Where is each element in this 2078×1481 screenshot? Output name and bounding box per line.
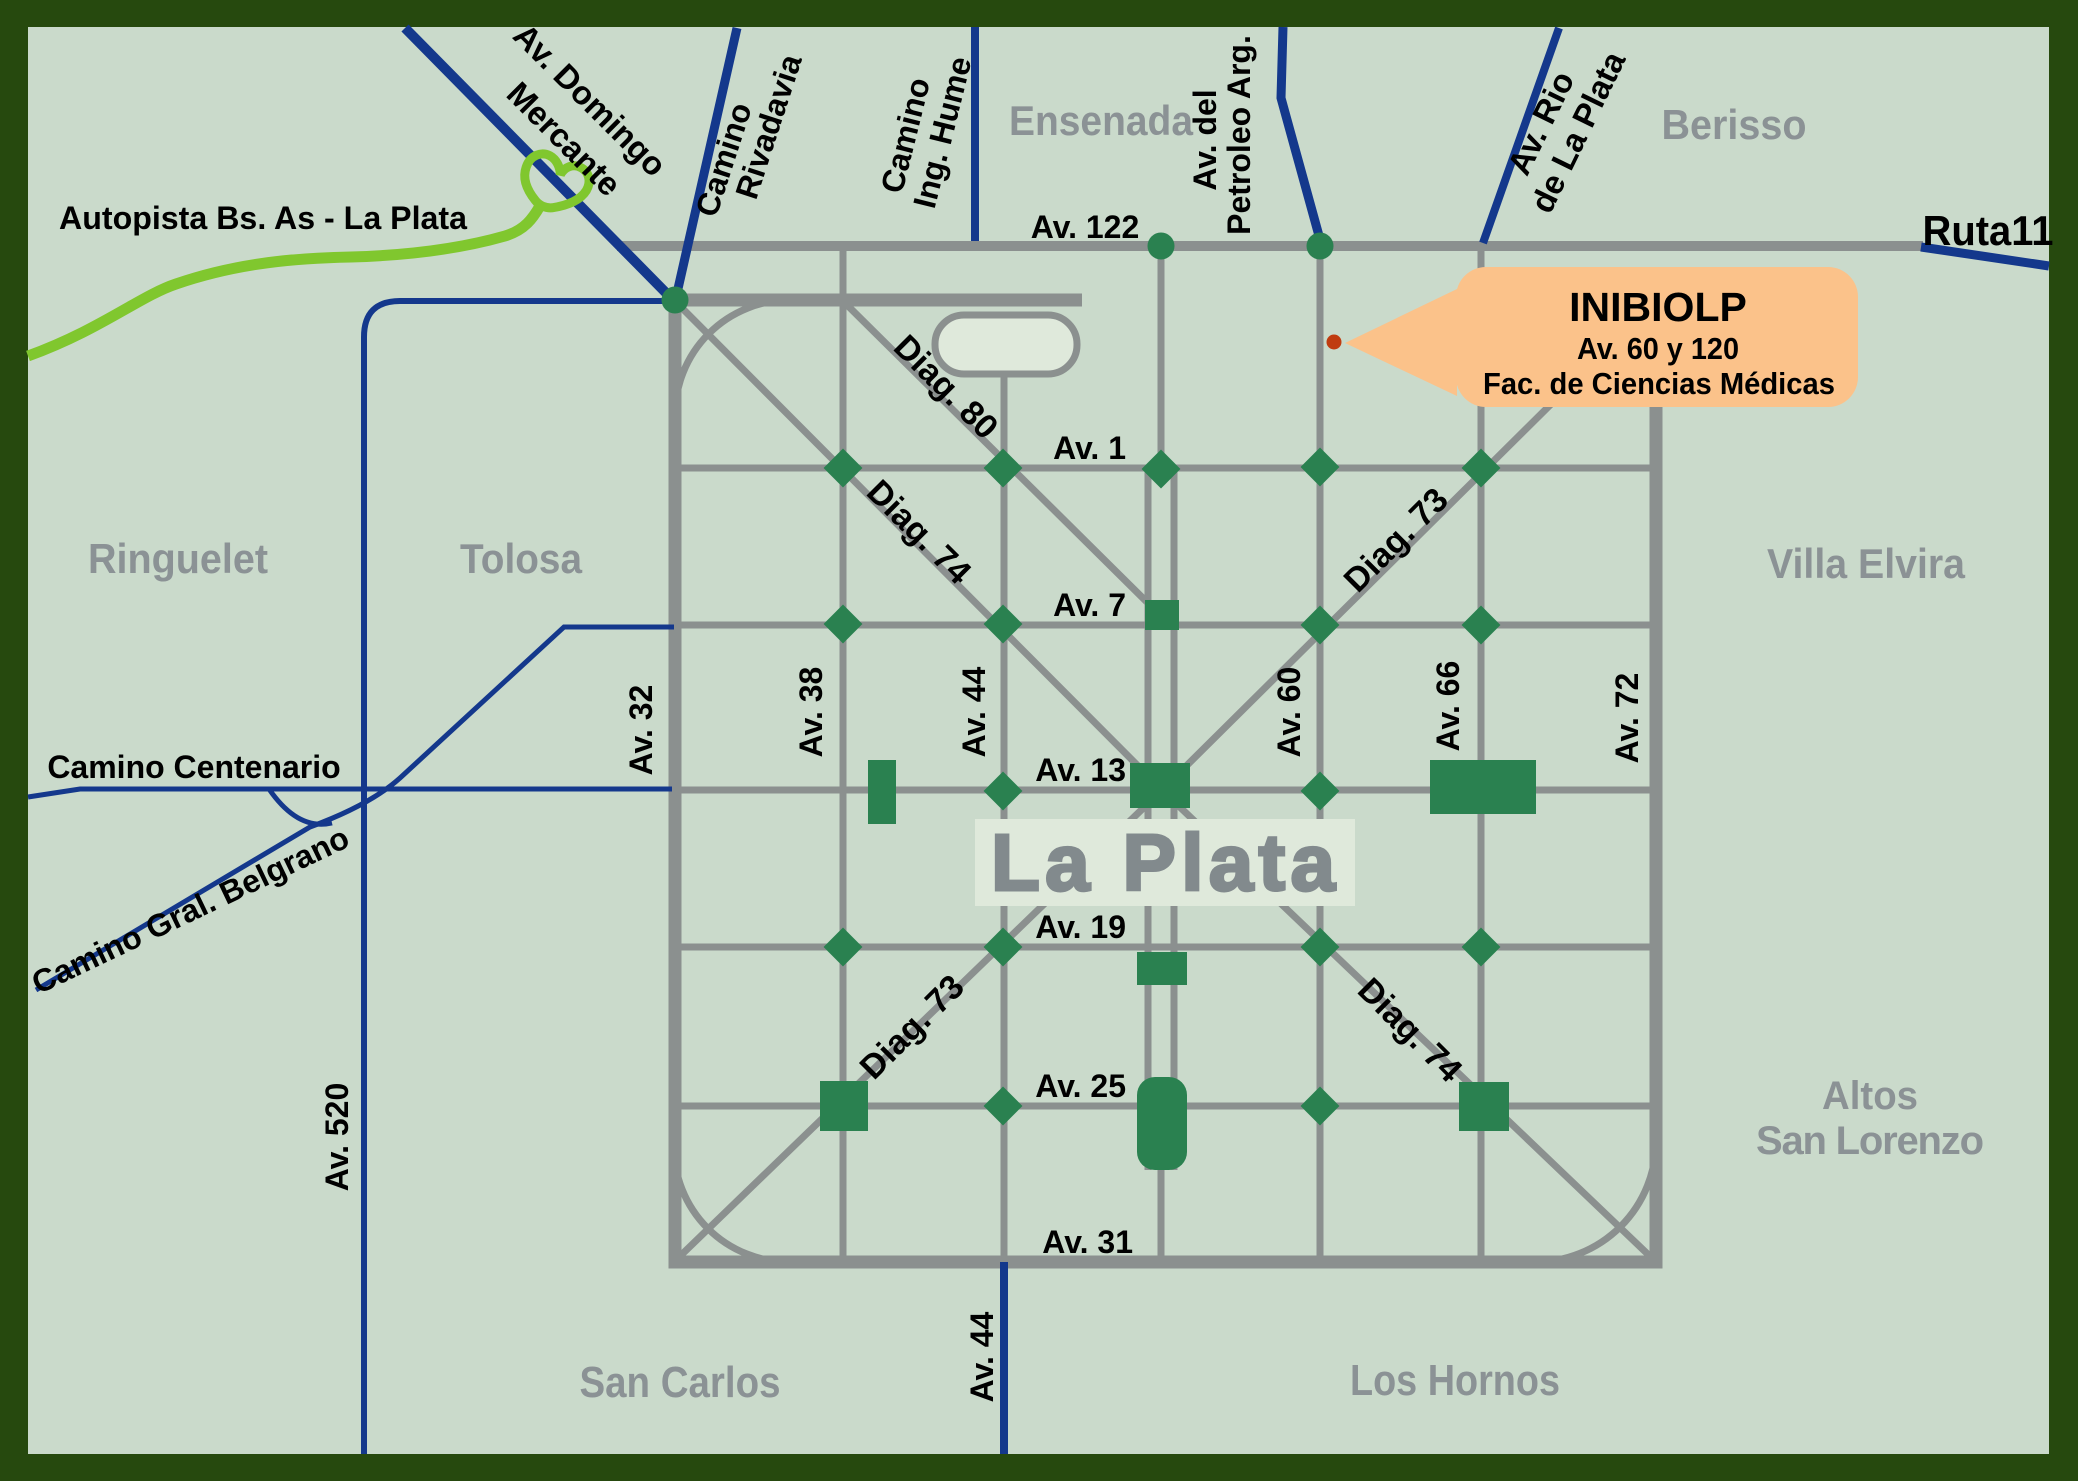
svg-text:Av. 32: Av. 32 bbox=[623, 685, 659, 776]
svg-text:Av. 44: Av. 44 bbox=[956, 666, 992, 757]
svg-text:San Lorenzo: San Lorenzo bbox=[1756, 1119, 1984, 1163]
svg-text:Av. 7: Av. 7 bbox=[1053, 587, 1126, 623]
svg-text:Av. 25: Av. 25 bbox=[1035, 1068, 1126, 1104]
svg-text:Altos: Altos bbox=[1822, 1074, 1918, 1118]
svg-text:Ruta11: Ruta11 bbox=[1923, 207, 2054, 254]
svg-text:Av. 520: Av. 520 bbox=[319, 1083, 355, 1192]
svg-text:Petroleo Arg.: Petroleo Arg. bbox=[1221, 35, 1257, 235]
svg-text:Fac. de Ciencias Médicas: Fac. de Ciencias Médicas bbox=[1483, 366, 1835, 401]
svg-text:Berisso: Berisso bbox=[1662, 101, 1807, 148]
svg-text:Los Hornos: Los Hornos bbox=[1350, 1356, 1560, 1405]
svg-text:Av. 1: Av. 1 bbox=[1053, 430, 1126, 466]
svg-text:Villa Elvira: Villa Elvira bbox=[1767, 540, 1966, 587]
svg-text:Av. 60: Av. 60 bbox=[1271, 667, 1307, 758]
svg-text:Av. 60 y 120: Av. 60 y 120 bbox=[1577, 331, 1739, 366]
svg-text:Ensenada: Ensenada bbox=[1009, 97, 1194, 144]
svg-text:INIBIOLP: INIBIOLP bbox=[1569, 284, 1747, 330]
svg-text:Av. 13: Av. 13 bbox=[1035, 752, 1126, 788]
svg-text:Av. 122: Av. 122 bbox=[1031, 209, 1140, 245]
svg-text:Av. 31: Av. 31 bbox=[1042, 1224, 1133, 1260]
svg-text:Ringuelet: Ringuelet bbox=[88, 535, 268, 582]
svg-text:Av. 19: Av. 19 bbox=[1035, 909, 1126, 945]
svg-text:San Carlos: San Carlos bbox=[580, 1358, 781, 1407]
svg-text:Tolosa: Tolosa bbox=[460, 535, 583, 582]
svg-text:Av. 38: Av. 38 bbox=[793, 667, 829, 758]
svg-text:Autopista Bs. As - La Plata: Autopista Bs. As - La Plata bbox=[59, 200, 467, 236]
svg-text:Av. 66: Av. 66 bbox=[1430, 661, 1466, 752]
svg-text:Camino Centenario: Camino Centenario bbox=[47, 749, 340, 785]
svg-text:Av. 72: Av. 72 bbox=[1609, 673, 1645, 764]
svg-text:Av. 44: Av. 44 bbox=[964, 1311, 1000, 1402]
